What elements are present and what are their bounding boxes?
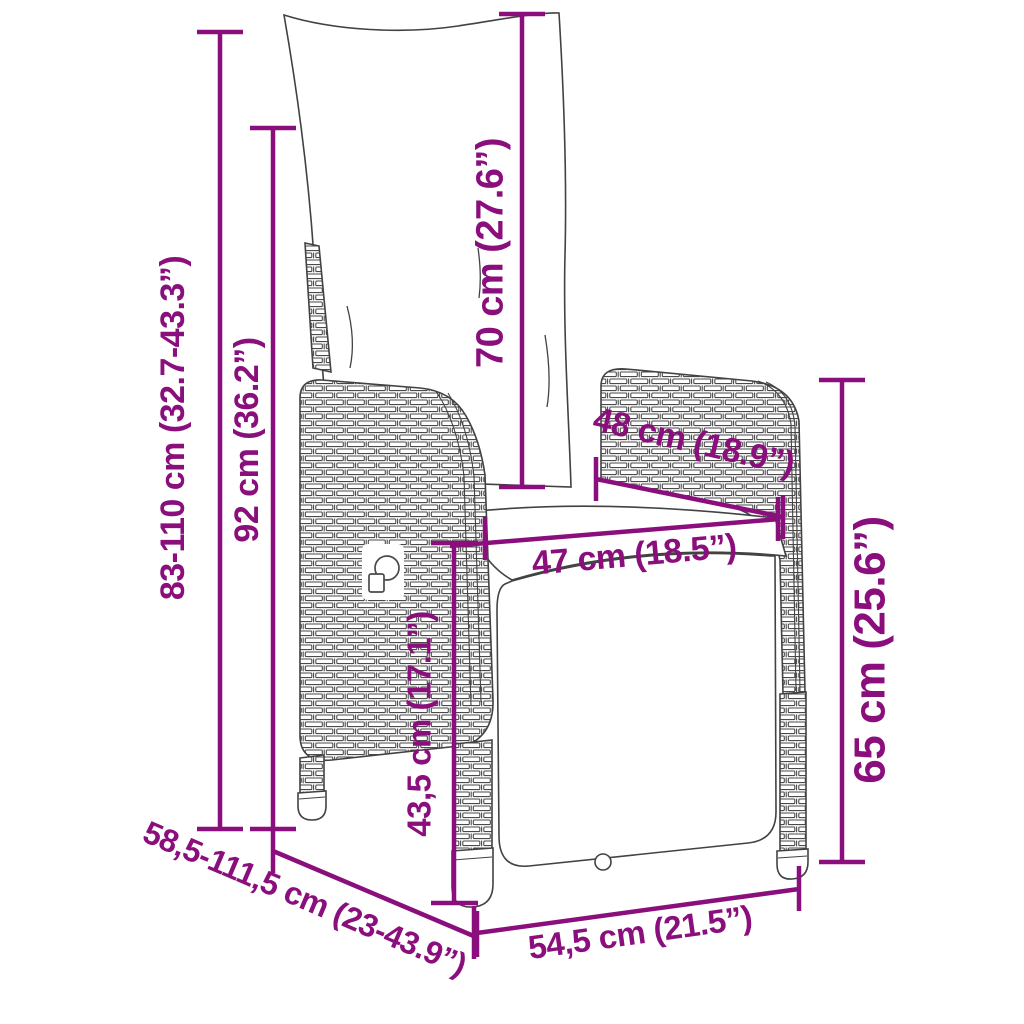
dimension-label-overall-height: 83-110 cm (32.7-43.3”)	[154, 256, 192, 600]
dimension-armrest-height: 65 cm (25.6”)	[819, 380, 894, 862]
footrest-knob	[595, 854, 611, 870]
dimension-extended-depth-range: 58,5-111,5 cm (23-43.9”)	[138, 814, 476, 983]
back-left-foot-cap	[298, 791, 326, 820]
dimension-label-base-width: 54,5 cm (21.5”)	[526, 898, 754, 966]
dimension-label-seat-height: 43,5 cm (17.1”)	[401, 611, 438, 836]
dimension-label-extended-depth-range: 58,5-111,5 cm (23-43.9”)	[138, 814, 472, 983]
dimension-base-width: 54,5 cm (21.5”)	[477, 866, 799, 966]
dimension-backrest-height: 92 cm (36.2”)	[228, 128, 296, 873]
dimension-diagram: 83-110 cm (32.7-43.3”) 92 cm (36.2”) 70 …	[0, 0, 1024, 1024]
dimension-label-backrest-height: 92 cm (36.2”)	[228, 337, 266, 542]
dimension-label-armrest-height: 65 cm (25.6”)	[845, 516, 894, 783]
dimension-label-back-cushion-height: 70 cm (27.6”)	[469, 138, 511, 368]
footrest-panel	[497, 553, 776, 866]
right-leg	[780, 692, 806, 852]
right-foot-cap	[777, 849, 808, 879]
recline-latch-icon	[362, 544, 404, 600]
back-left-leg	[300, 755, 324, 794]
front-left-leg	[455, 740, 492, 853]
